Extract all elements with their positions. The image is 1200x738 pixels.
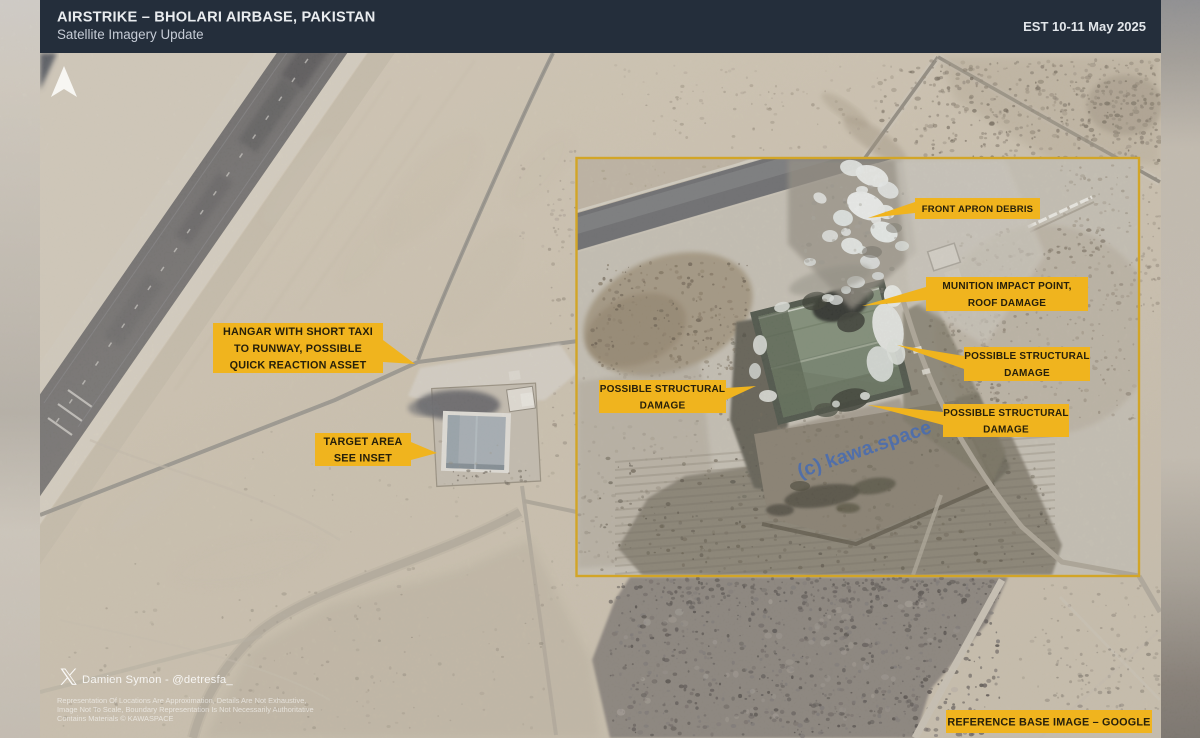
svg-text:DAMAGE: DAMAGE <box>983 424 1029 435</box>
svg-text:POSSIBLE STRUCTURAL: POSSIBLE STRUCTURAL <box>964 351 1089 362</box>
svg-text:TO RUNWAY, POSSIBLE: TO RUNWAY, POSSIBLE <box>234 343 362 355</box>
svg-text:POSSIBLE STRUCTURAL: POSSIBLE STRUCTURAL <box>600 384 725 395</box>
svg-text:MUNITION IMPACT POINT,: MUNITION IMPACT POINT, <box>942 281 1071 292</box>
svg-text:POSSIBLE STRUCTURAL: POSSIBLE STRUCTURAL <box>943 408 1068 419</box>
svg-text:Damien Symon - @detresfa_: Damien Symon - @detresfa_ <box>82 674 233 686</box>
svg-text:Image Not To Scale, Boundary R: Image Not To Scale, Boundary Representat… <box>57 705 314 714</box>
svg-text:ROOF DAMAGE: ROOF DAMAGE <box>968 298 1046 309</box>
svg-text:Contains Materials © KAWASPACE: Contains Materials © KAWASPACE <box>57 714 174 723</box>
svg-text:QUICK REACTION ASSET: QUICK REACTION ASSET <box>230 360 367 372</box>
svg-text:SEE INSET: SEE INSET <box>334 453 392 465</box>
svg-text:FRONT APRON DEBRIS: FRONT APRON DEBRIS <box>922 204 1033 215</box>
svg-text:TARGET AREA: TARGET AREA <box>324 436 403 448</box>
svg-text:AIRSTRIKE – BHOLARI AIRBASE, P: AIRSTRIKE – BHOLARI AIRBASE, PAKISTAN <box>57 10 375 26</box>
svg-text:Representation Of Locations Ar: Representation Of Locations Are Approxim… <box>57 696 306 705</box>
svg-text:DAMAGE: DAMAGE <box>640 400 686 411</box>
svg-text:REFERENCE BASE IMAGE – GOOGLE: REFERENCE BASE IMAGE – GOOGLE <box>947 716 1150 728</box>
svg-text:EST 10-11 May 2025: EST 10-11 May 2025 <box>1023 19 1146 34</box>
svg-text:DAMAGE: DAMAGE <box>1004 368 1050 379</box>
svg-text:Satellite Imagery Update: Satellite Imagery Update <box>57 27 204 42</box>
svg-text:HANGAR WITH SHORT TAXI: HANGAR WITH SHORT TAXI <box>223 326 373 338</box>
